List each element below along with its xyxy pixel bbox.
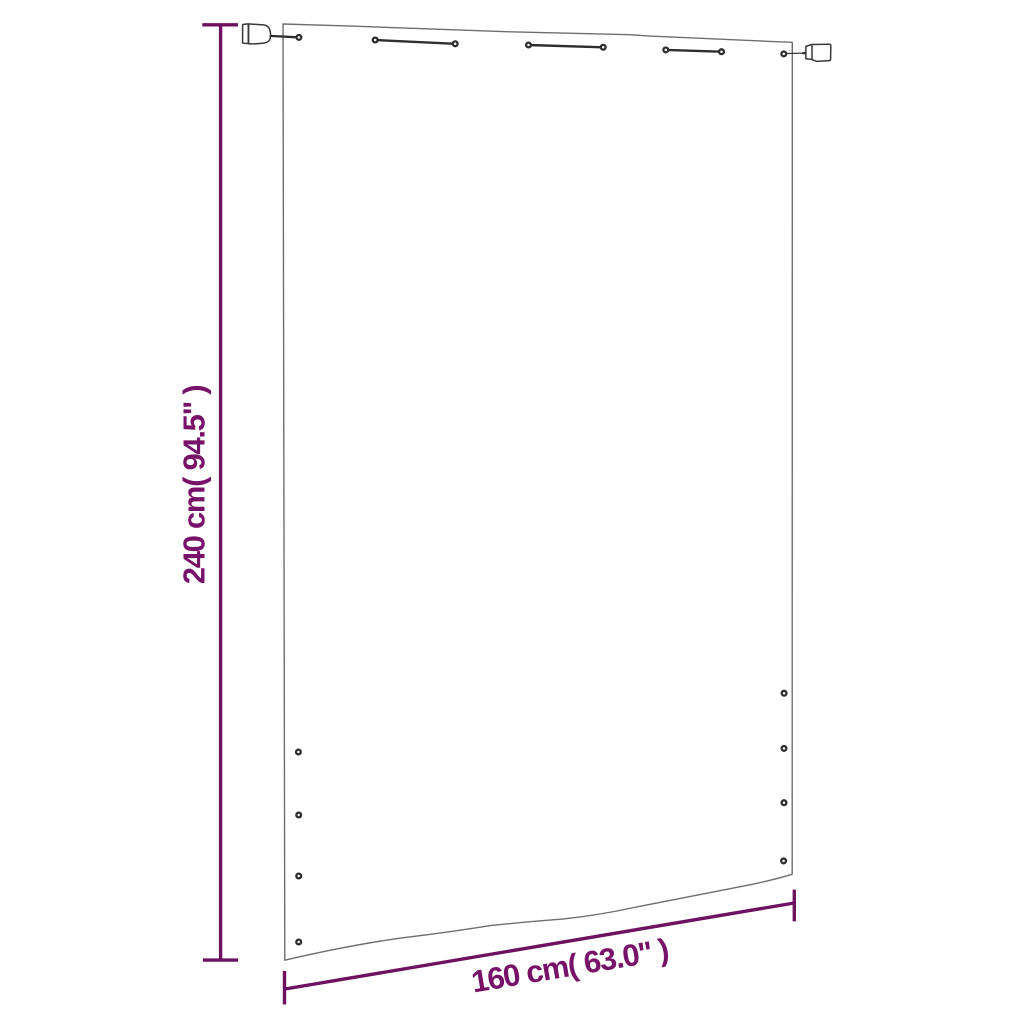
- svg-text:240 cm( 94.5" ): 240 cm( 94.5" ): [177, 386, 212, 585]
